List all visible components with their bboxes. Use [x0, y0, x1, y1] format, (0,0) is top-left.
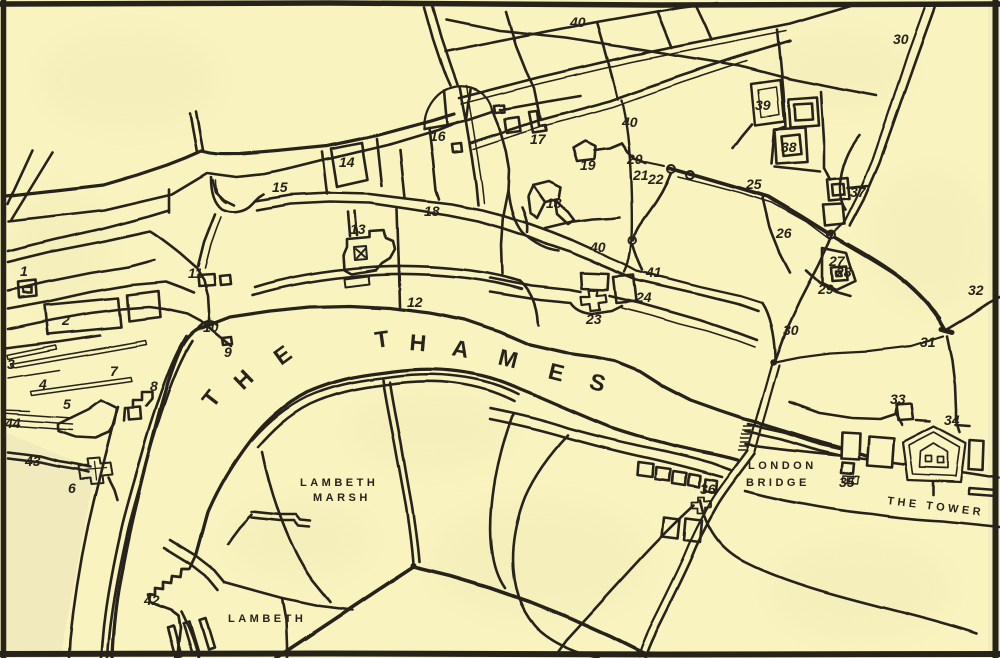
- svg-text:40: 40: [621, 114, 638, 130]
- svg-text:LAMBETH: LAMBETH: [300, 477, 378, 489]
- svg-text:21: 21: [632, 167, 649, 183]
- svg-text:43: 43: [24, 453, 41, 469]
- svg-text:17: 17: [530, 131, 547, 147]
- svg-text:42: 42: [143, 592, 160, 608]
- svg-text:9: 9: [224, 344, 232, 360]
- svg-text:20: 20: [626, 151, 643, 167]
- svg-text:31: 31: [920, 334, 936, 350]
- svg-text:8: 8: [150, 378, 158, 394]
- svg-text:2: 2: [61, 312, 70, 328]
- svg-text:19: 19: [580, 157, 596, 173]
- svg-text:38: 38: [781, 139, 797, 155]
- svg-text:5: 5: [63, 396, 71, 412]
- svg-text:18: 18: [546, 195, 562, 211]
- svg-text:10: 10: [203, 319, 219, 335]
- svg-text:26: 26: [775, 225, 792, 241]
- svg-text:39: 39: [755, 97, 771, 113]
- svg-text:28: 28: [835, 264, 852, 280]
- svg-text:30: 30: [893, 31, 909, 47]
- svg-text:36: 36: [700, 481, 716, 497]
- svg-text:40: 40: [569, 14, 586, 30]
- svg-text:34: 34: [944, 412, 960, 428]
- svg-text:40: 40: [589, 239, 606, 255]
- svg-text:30: 30: [783, 322, 799, 338]
- svg-text:22: 22: [647, 171, 664, 187]
- svg-text:44: 44: [4, 415, 21, 431]
- svg-text:29: 29: [817, 281, 834, 297]
- svg-text:32: 32: [968, 282, 984, 298]
- svg-text:BRIDGE: BRIDGE: [746, 477, 810, 489]
- svg-text:33: 33: [890, 391, 906, 407]
- svg-text:12: 12: [407, 294, 423, 310]
- svg-text:13: 13: [350, 221, 366, 237]
- svg-text:LONDON: LONDON: [748, 460, 817, 472]
- svg-text:25: 25: [745, 176, 762, 192]
- svg-text:35: 35: [839, 474, 855, 490]
- svg-text:18: 18: [424, 203, 440, 219]
- svg-text:37: 37: [850, 184, 867, 200]
- svg-text:16: 16: [430, 128, 446, 144]
- svg-text:11: 11: [188, 265, 203, 281]
- svg-text:MARSH: MARSH: [313, 492, 371, 504]
- svg-text:15: 15: [272, 179, 288, 195]
- svg-text:6: 6: [68, 480, 76, 496]
- svg-text:H: H: [409, 329, 428, 356]
- svg-text:7: 7: [110, 363, 119, 379]
- svg-text:4: 4: [38, 376, 47, 392]
- svg-text:LAMBETH: LAMBETH: [228, 613, 306, 625]
- svg-text:14: 14: [339, 154, 355, 170]
- svg-text:1: 1: [20, 263, 28, 279]
- svg-text:24: 24: [635, 289, 652, 305]
- svg-text:41: 41: [645, 264, 662, 280]
- svg-text:3: 3: [7, 356, 15, 372]
- svg-text:23: 23: [585, 311, 602, 327]
